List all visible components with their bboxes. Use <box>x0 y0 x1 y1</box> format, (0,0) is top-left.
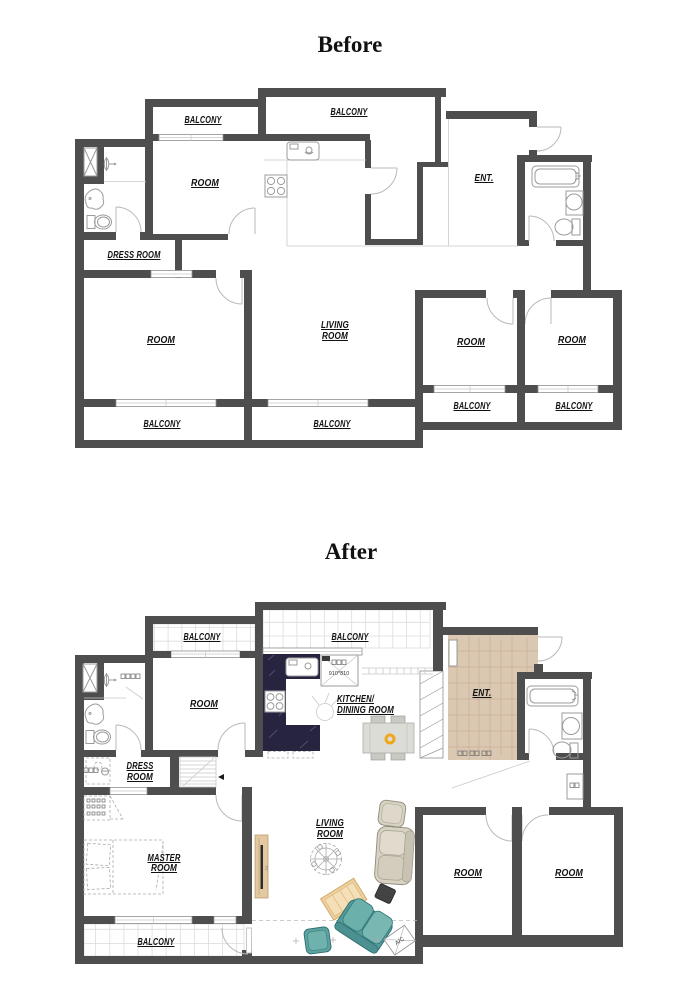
svg-text:BALCONY: BALCONY <box>314 419 352 430</box>
svg-text:BALCONY: BALCONY <box>185 115 223 126</box>
svg-text:ROOM: ROOM <box>555 868 583 879</box>
svg-text:ROOM: ROOM <box>151 863 177 874</box>
svg-text:BALCONY: BALCONY <box>331 107 369 118</box>
svg-text:LIVING: LIVING <box>321 320 349 331</box>
svg-text:ROOM: ROOM <box>127 772 153 783</box>
svg-text:ROOM: ROOM <box>322 331 348 342</box>
svg-text:DRESS: DRESS <box>127 761 154 772</box>
svg-text:ENT.: ENT. <box>473 688 492 699</box>
svg-text:ROOM: ROOM <box>454 868 482 879</box>
svg-text:BALCONY: BALCONY <box>184 632 222 643</box>
svg-text:BALCONY: BALCONY <box>556 401 594 412</box>
svg-text:DINING ROOM: DINING ROOM <box>337 705 394 716</box>
svg-text:ENT.: ENT. <box>475 173 494 184</box>
svg-text:TV: TV <box>264 865 269 870</box>
svg-text:DRESS ROOM: DRESS ROOM <box>108 250 161 261</box>
svg-text:BALCONY: BALCONY <box>144 419 182 430</box>
svg-text:ROOM: ROOM <box>317 829 343 840</box>
svg-text:BALCONY: BALCONY <box>332 632 370 643</box>
svg-text:Before: Before <box>318 32 383 57</box>
svg-text:LIVING: LIVING <box>316 818 344 829</box>
svg-text:910*810: 910*810 <box>329 671 350 677</box>
svg-text:ROOM: ROOM <box>558 335 586 346</box>
svg-text:ROOM: ROOM <box>457 337 485 348</box>
svg-text:BALCONY: BALCONY <box>138 937 176 948</box>
svg-text:ROOM: ROOM <box>190 699 218 710</box>
svg-text:After: After <box>325 539 377 564</box>
svg-text:KITCHEN/: KITCHEN/ <box>337 694 375 705</box>
svg-text:BALCONY: BALCONY <box>454 401 492 412</box>
svg-text:ROOM: ROOM <box>191 178 219 189</box>
svg-text:ROOM: ROOM <box>147 335 175 346</box>
